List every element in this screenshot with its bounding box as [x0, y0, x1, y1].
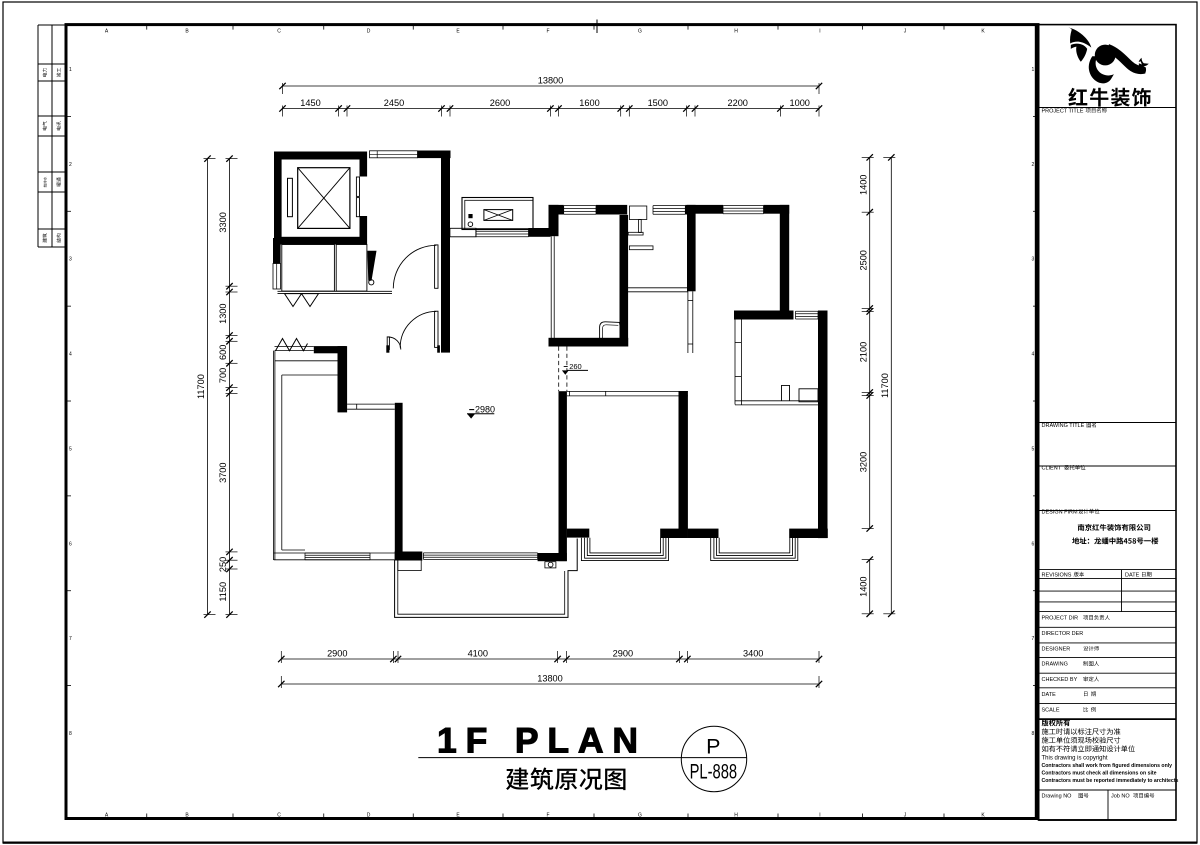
svg-text:I: I [819, 29, 820, 35]
svg-text:2450: 2450 [384, 98, 404, 108]
svg-text:5: 5 [1032, 446, 1035, 452]
svg-text:DESIGN FIRM: DESIGN FIRM [1042, 509, 1078, 515]
svg-text:13800: 13800 [538, 75, 564, 85]
svg-text:11700: 11700 [880, 373, 890, 398]
svg-text:6: 6 [69, 541, 72, 547]
svg-text:DRAWING: DRAWING [1042, 662, 1068, 668]
svg-text:F: F [546, 812, 549, 818]
svg-text:Job NO: Job NO [1111, 794, 1130, 800]
svg-text:PL-888: PL-888 [690, 761, 738, 784]
svg-text:H: H [734, 812, 738, 818]
svg-text:C: C [277, 812, 281, 818]
svg-text:D: D [367, 812, 371, 818]
svg-text:3: 3 [69, 257, 72, 263]
svg-text:2: 2 [69, 162, 72, 168]
svg-text:600: 600 [218, 345, 228, 360]
svg-text:SCALE: SCALE [1042, 708, 1060, 714]
svg-text:1300: 1300 [218, 303, 228, 323]
svg-text:DIRECTOR DER: DIRECTOR DER [1042, 631, 1084, 637]
svg-text:13800: 13800 [537, 673, 563, 683]
svg-text:5: 5 [69, 446, 72, 452]
svg-text:DESIGNER: DESIGNER [1042, 647, 1071, 653]
svg-text:2900: 2900 [327, 648, 347, 658]
svg-text:2200: 2200 [727, 98, 747, 108]
svg-text:2900: 2900 [613, 648, 633, 658]
svg-text:2980: 2980 [475, 405, 495, 415]
svg-text:1450: 1450 [300, 98, 320, 108]
svg-text:2100: 2100 [858, 342, 868, 362]
svg-text:DATE: DATE [1042, 692, 1057, 698]
svg-text:4100: 4100 [468, 648, 488, 658]
svg-text:3700: 3700 [218, 462, 228, 482]
svg-text:4: 4 [69, 352, 72, 358]
svg-text:11700: 11700 [196, 374, 206, 399]
svg-text:1400: 1400 [858, 175, 868, 195]
svg-text:DATE: DATE [1125, 572, 1140, 578]
svg-text:4: 4 [1032, 352, 1035, 358]
svg-text:1: 1 [1032, 67, 1035, 73]
svg-text:Contractors shall work from fi: Contractors shall work from figured dime… [1042, 763, 1173, 769]
svg-text:D: D [367, 29, 371, 35]
svg-text:Drawing NO: Drawing NO [1042, 794, 1073, 800]
svg-text:I: I [819, 812, 820, 818]
svg-text:3200: 3200 [858, 452, 868, 472]
svg-text:DRAWING TITLE: DRAWING TITLE [1042, 423, 1085, 429]
svg-text:P: P [706, 734, 720, 758]
svg-text:PROJECT DIR: PROJECT DIR [1042, 616, 1079, 622]
svg-text:3300: 3300 [218, 212, 228, 232]
svg-text:1000: 1000 [789, 98, 809, 108]
svg-text:7: 7 [69, 636, 72, 642]
svg-text:260: 260 [569, 362, 582, 371]
svg-text:250: 250 [218, 557, 228, 572]
svg-text:F: F [546, 29, 549, 35]
svg-text:CHECKED BY: CHECKED BY [1042, 677, 1078, 683]
svg-text:1: 1 [69, 67, 72, 73]
svg-text:This drawing is copyright: This drawing is copyright [1042, 756, 1108, 762]
svg-text:1600: 1600 [579, 98, 599, 108]
svg-text:C: C [277, 29, 281, 35]
svg-text:1500: 1500 [648, 98, 668, 108]
svg-text:8: 8 [69, 731, 72, 737]
svg-text:Contractors must check all di: Contractors must check all dimensions on… [1042, 770, 1157, 776]
svg-text:6: 6 [1032, 541, 1035, 547]
svg-text:1400: 1400 [858, 576, 868, 596]
svg-text:2: 2 [1032, 162, 1035, 168]
svg-text:G: G [638, 812, 642, 818]
svg-text:7: 7 [1032, 636, 1035, 642]
svg-text:Contractors must be reported i: Contractors must be reported immediately… [1042, 778, 1179, 784]
svg-text:REVISIONS: REVISIONS [1042, 572, 1072, 578]
svg-text:CLIENT: CLIENT [1042, 466, 1062, 472]
svg-text:3: 3 [1032, 257, 1035, 263]
svg-text:G: G [638, 29, 642, 35]
svg-text:700: 700 [218, 368, 228, 383]
svg-text:8: 8 [1032, 731, 1035, 737]
svg-text:PROJECT TITLE: PROJECT TITLE [1042, 108, 1084, 114]
svg-text:2500: 2500 [858, 250, 868, 270]
svg-text:1150: 1150 [218, 582, 228, 602]
svg-text:H: H [734, 29, 738, 35]
svg-text:3400: 3400 [743, 648, 763, 658]
svg-text:2600: 2600 [490, 98, 510, 108]
